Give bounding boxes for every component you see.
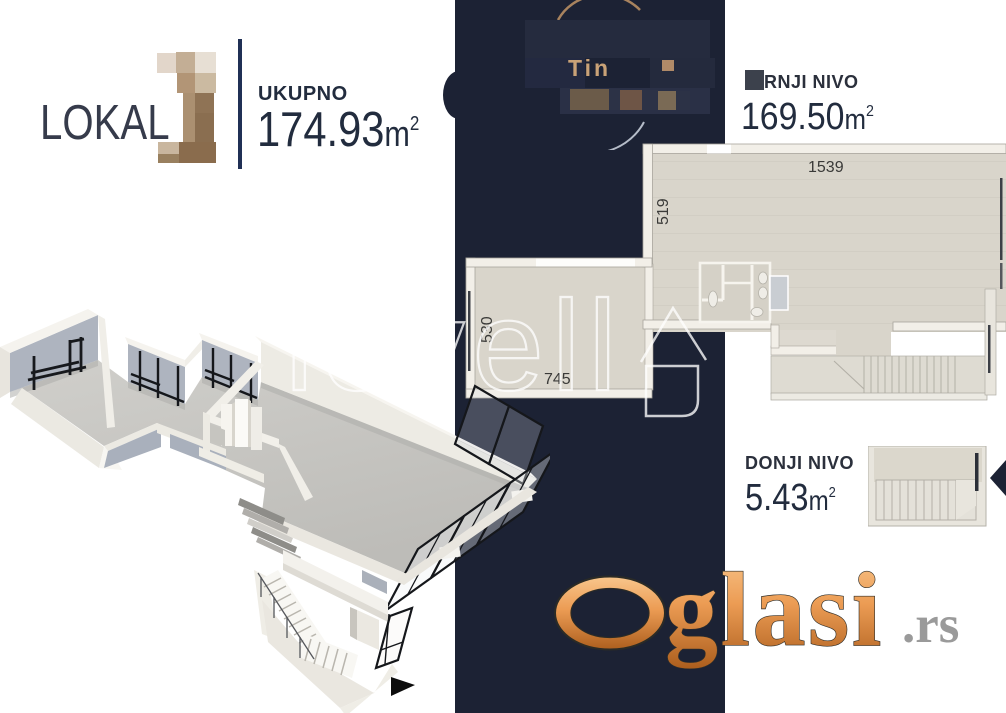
svg-text:.rs: .rs xyxy=(902,596,959,654)
svg-text:glasi: glasi xyxy=(665,551,884,668)
svg-text:levell: levell xyxy=(285,275,625,418)
